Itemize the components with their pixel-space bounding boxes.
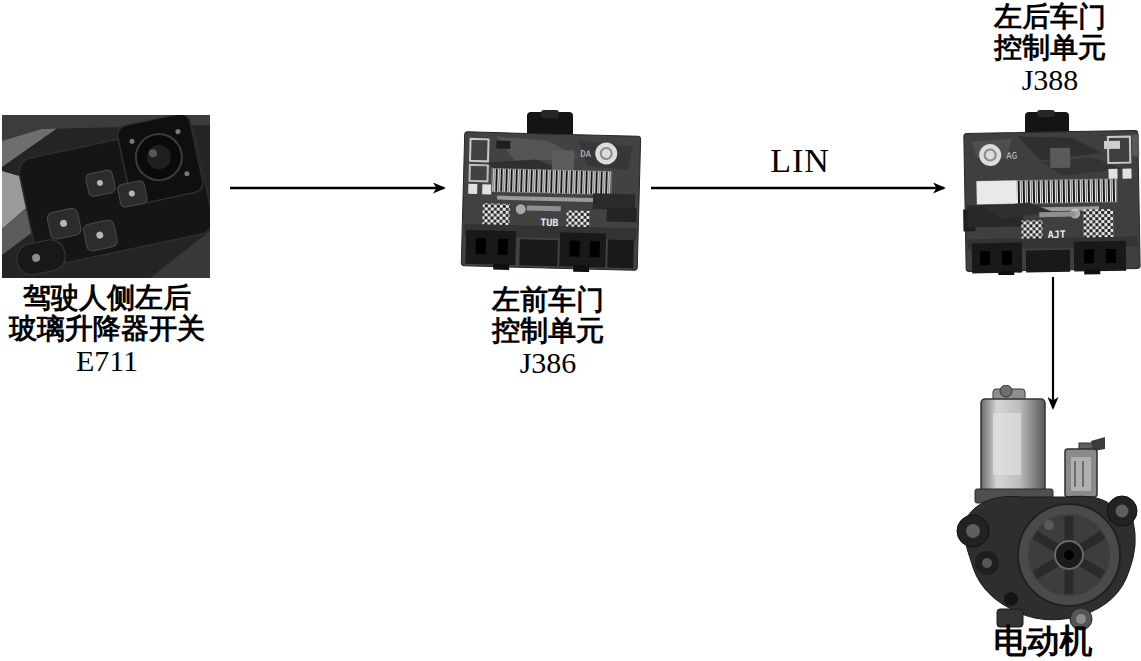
j388-label-code: J388 [948, 63, 1141, 96]
lin-bus-label: LIN [705, 142, 895, 180]
switch-label: 驾驶人侧左后 玻璃升降器开关 E711 [0, 282, 217, 377]
j386-label-line1: 左前车门 [450, 284, 646, 315]
driver-side-window-switch-photo [2, 115, 210, 278]
motor-label: 电动机 [948, 623, 1138, 659]
j386-label-line2: 控制单元 [450, 315, 646, 346]
switch-label-code: E711 [0, 344, 217, 377]
j388-label: 左后车门 控制单元 J388 [948, 1, 1141, 96]
control-module-icon: AG AJT [963, 110, 1141, 275]
rear-left-door-control-unit-photo: AG AJT [963, 110, 1141, 275]
switch-label-line1: 驾驶人侧左后 [0, 282, 217, 313]
motor-icon [953, 385, 1140, 633]
window-switch-panel-icon [2, 115, 210, 278]
j388-label-line2: 控制单元 [948, 32, 1141, 63]
window-lifter-motor-photo [953, 385, 1140, 633]
diagram-canvas: DA TUB [0, 0, 1141, 661]
module-emblem-marking: AG [1006, 151, 1017, 161]
switch-label-line2: 玻璃升降器开关 [0, 313, 217, 344]
control-module-icon: DA TUB [455, 110, 645, 272]
module-emblem-marking: DA [580, 149, 592, 159]
j386-label: 左前车门 控制单元 J386 [450, 284, 646, 379]
front-left-door-control-unit-photo: DA TUB [455, 110, 645, 272]
j388-label-line1: 左后车门 [948, 1, 1141, 32]
j386-label-code: J386 [450, 346, 646, 379]
